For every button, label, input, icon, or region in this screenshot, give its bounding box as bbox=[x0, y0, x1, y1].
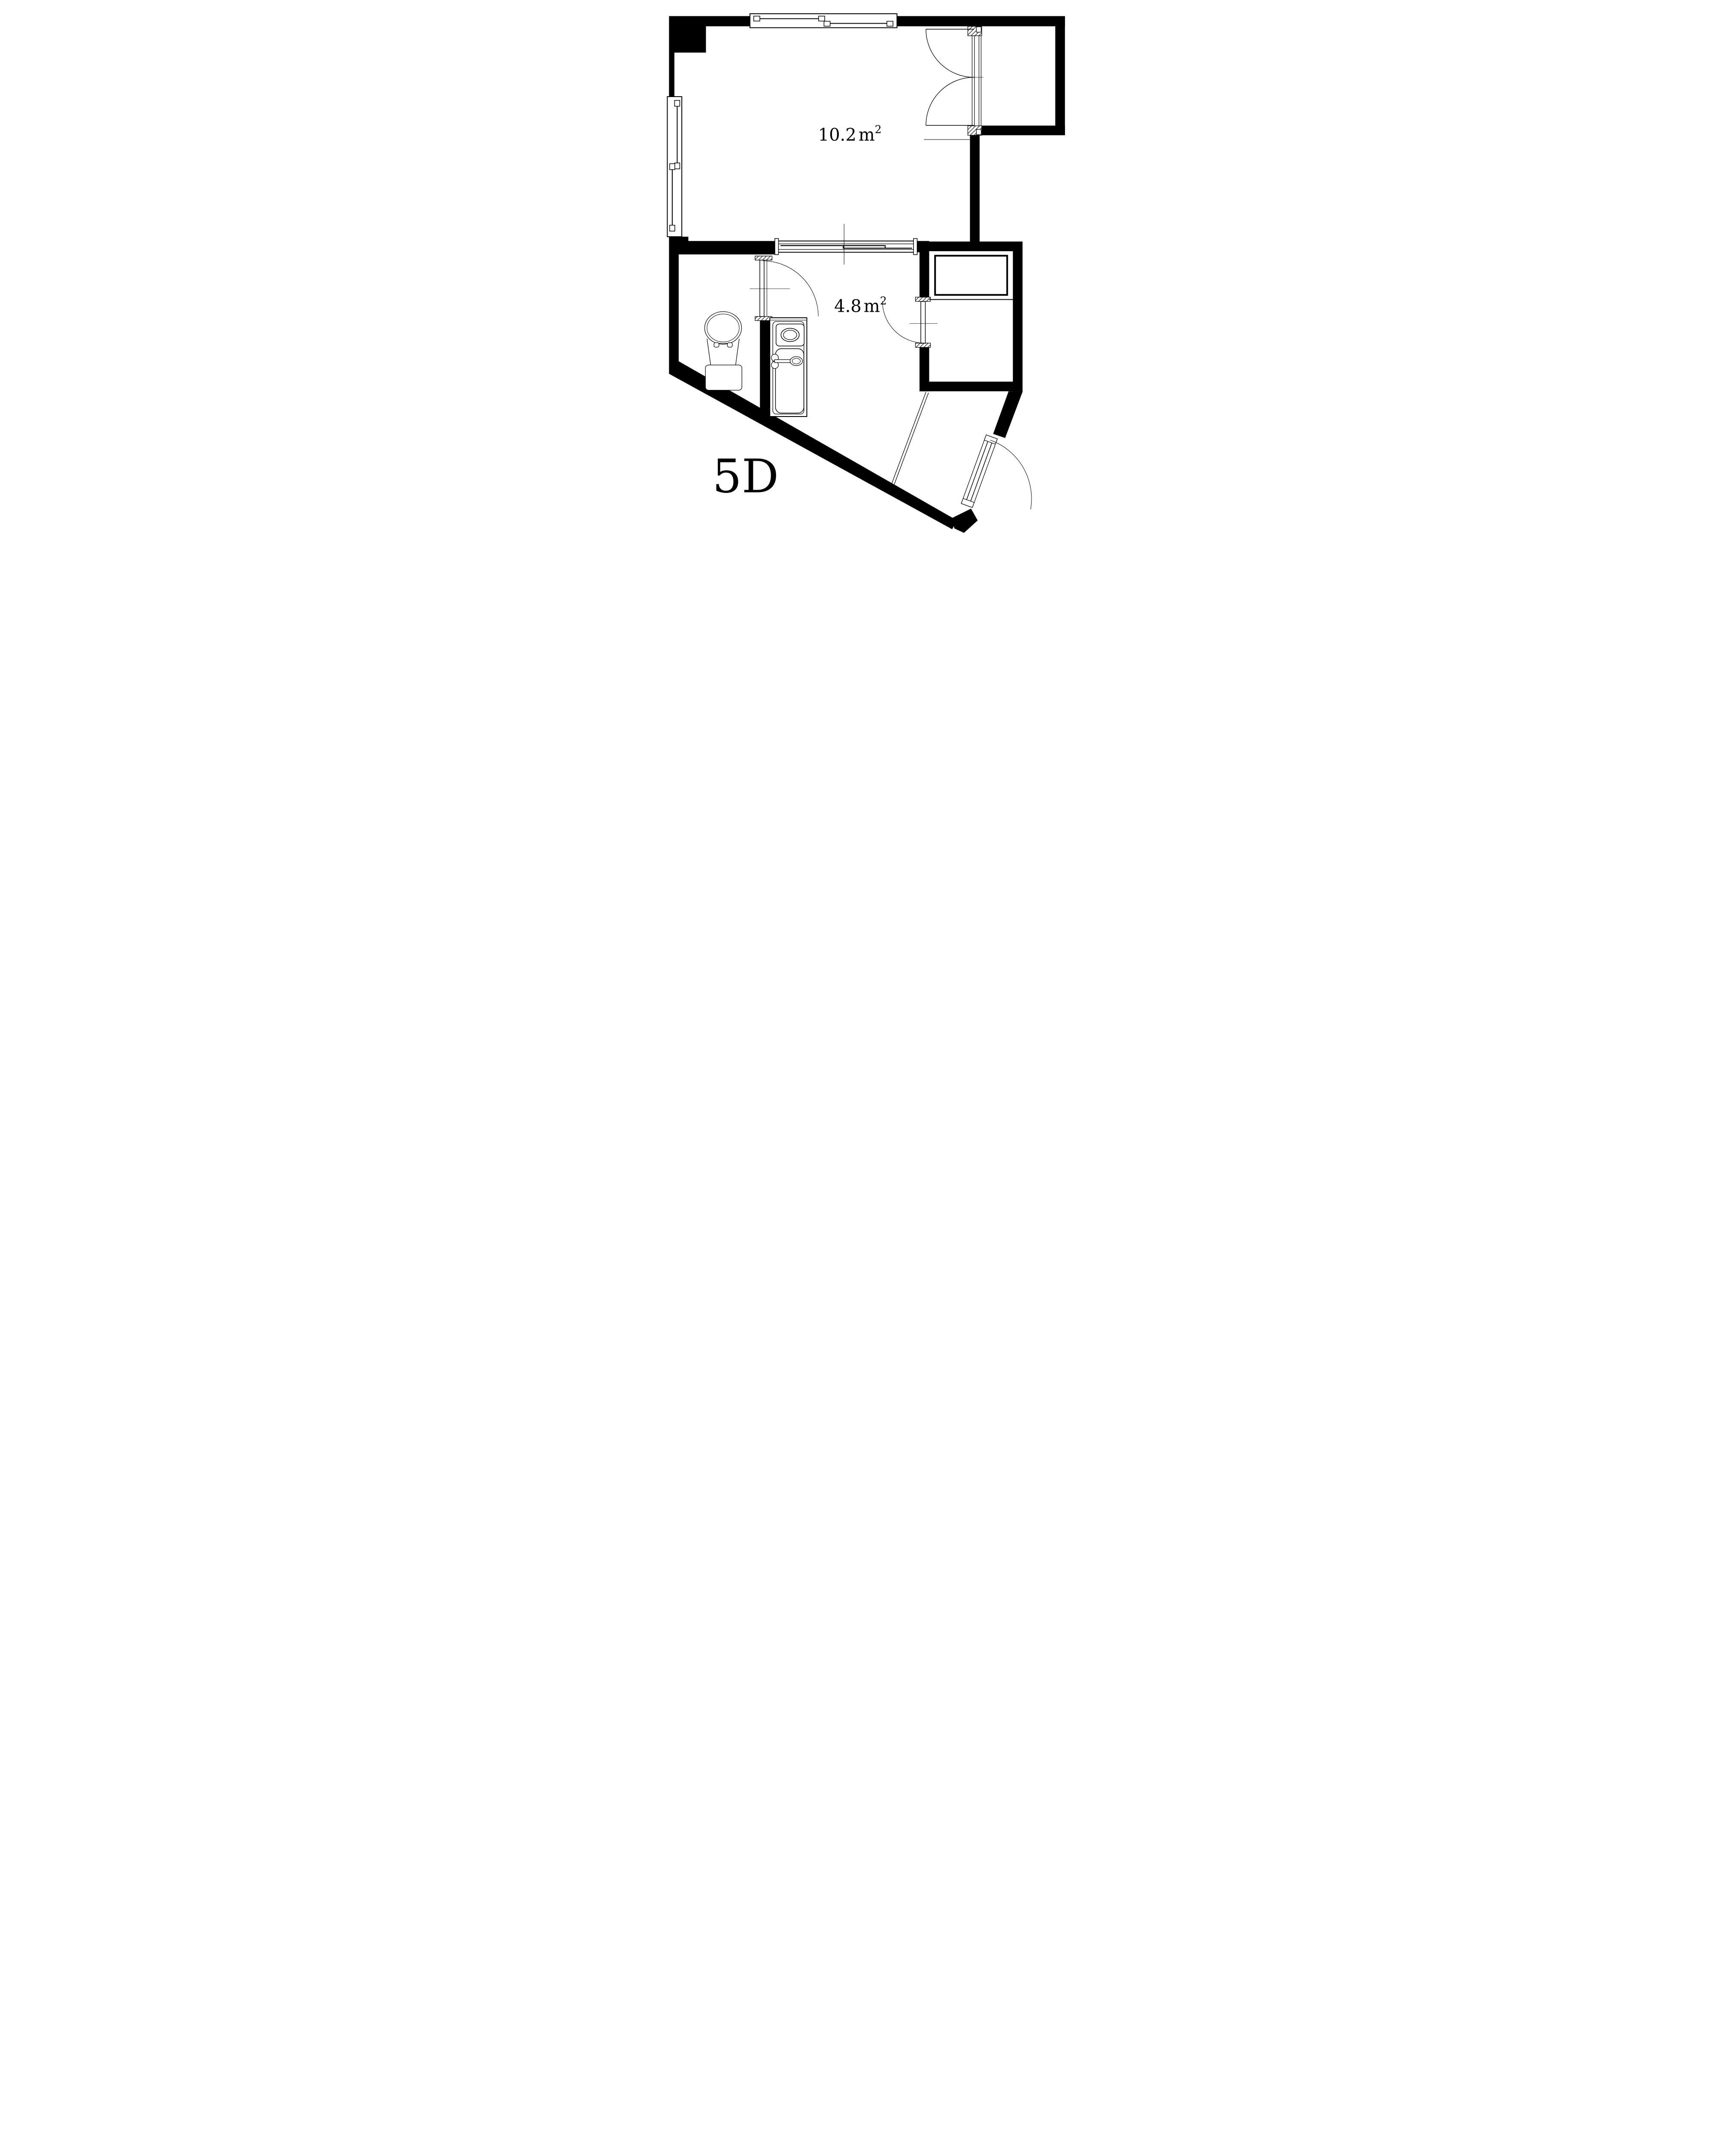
door-swing-arc bbox=[763, 261, 818, 316]
door-jamb-detail bbox=[976, 27, 981, 33]
door-leaf bbox=[760, 260, 764, 316]
door-swing-arc bbox=[926, 29, 974, 77]
wall-left-upper bbox=[669, 16, 674, 97]
door-leaf bbox=[966, 439, 992, 502]
door-leaf bbox=[921, 301, 926, 344]
kitchen-room-area-label: 4.8m2 bbox=[834, 295, 886, 316]
door-swing-arc bbox=[882, 301, 924, 344]
window-pane-end bbox=[753, 16, 759, 21]
toilet-side bbox=[735, 339, 739, 368]
window-pane-end bbox=[819, 16, 825, 21]
entry-swing-door bbox=[961, 435, 1032, 510]
window-pane-end bbox=[887, 21, 893, 27]
toilet-tank bbox=[705, 365, 742, 390]
double-swing-door bbox=[926, 26, 983, 135]
entry-step-line bbox=[891, 392, 929, 485]
wall-left-lower bbox=[669, 248, 679, 366]
door-jamb-hatch bbox=[915, 343, 930, 347]
bathroom-swing-door bbox=[750, 256, 818, 320]
step-edge bbox=[891, 392, 926, 484]
door-swing-arc bbox=[926, 77, 974, 125]
toilet-side bbox=[707, 339, 711, 368]
wall-entry-lower-stub bbox=[952, 509, 977, 533]
window-pane-end bbox=[674, 163, 680, 169]
window-pane-end bbox=[674, 100, 680, 106]
wall-entry-upper-stub bbox=[993, 391, 1023, 438]
floor-plan-canvas: 10.2m2 4.8m2 5D bbox=[651, 0, 1085, 564]
wall-right-middle bbox=[970, 135, 980, 242]
left-sliding-window bbox=[667, 97, 682, 237]
door-jamb-hatch bbox=[915, 297, 930, 301]
top-sliding-window bbox=[750, 14, 897, 28]
door-jamb-hatch bbox=[755, 256, 772, 260]
wall-alcove-right bbox=[1055, 16, 1065, 136]
interior-sliding-partition bbox=[775, 224, 917, 265]
floor-plan-page: 10.2m2 4.8m2 5D bbox=[0, 0, 1736, 564]
wall-bathroom-kitchen-divider bbox=[760, 321, 770, 414]
door-swing-arc bbox=[990, 440, 1032, 509]
wall-alcove-bottom bbox=[979, 126, 1065, 136]
toilet-bowl-inner bbox=[707, 314, 739, 342]
toilet-seat-hinge bbox=[714, 343, 719, 347]
window-pane-end bbox=[824, 21, 830, 27]
faucet-outlet-inner bbox=[792, 359, 800, 364]
wall-closet-top bbox=[920, 242, 1023, 252]
storage-closet bbox=[929, 256, 1013, 300]
main-room-area-label: 10.2m2 bbox=[818, 123, 881, 145]
wall-closet-right bbox=[1013, 242, 1023, 392]
partition-jamb bbox=[775, 239, 779, 255]
partition-jamb bbox=[914, 239, 917, 255]
partition-frame bbox=[777, 241, 915, 252]
toilet bbox=[704, 312, 742, 390]
wall-closet-bottom bbox=[920, 382, 1023, 392]
window-pane-end bbox=[670, 164, 675, 170]
wall-top-left bbox=[669, 16, 750, 27]
wall-bathroom-top bbox=[669, 241, 777, 254]
stove-burner-inner bbox=[783, 330, 797, 340]
unit-number-label: 5D bbox=[712, 450, 779, 503]
window-pane-end bbox=[670, 225, 675, 231]
door-jamb-detail bbox=[976, 129, 981, 135]
closet-shelf-box bbox=[935, 256, 1007, 295]
step-edge bbox=[894, 393, 929, 485]
wall-top-right bbox=[897, 16, 1065, 27]
toilet-seat-hinge bbox=[727, 343, 732, 347]
kitchen-counter-with-stove-and-sink bbox=[770, 318, 807, 417]
closet-swing-door bbox=[882, 297, 938, 347]
